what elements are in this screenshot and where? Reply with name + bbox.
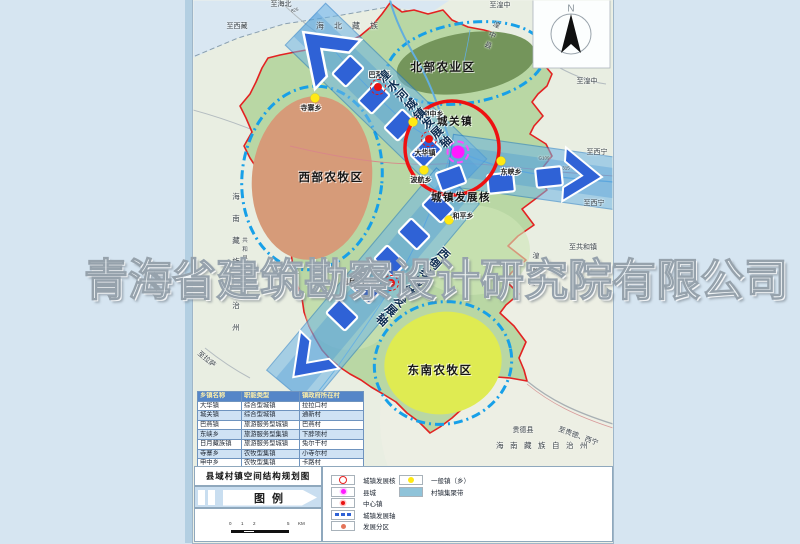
- label-zone-southeast: 东南农牧区: [408, 362, 473, 378]
- legend: 城镇发展核 县城 中心镇 城镇发展轴 发展分区 一般镇（乡）: [322, 466, 613, 542]
- cluster-belt-symbol: [399, 487, 423, 497]
- plan-title: 县域村镇空间结构规划图: [194, 466, 322, 486]
- col-town-name: 乡镇名称: [198, 392, 242, 402]
- legend-item-central-town: 中心镇: [331, 499, 396, 507]
- table-row: 东峡乡旅游服务型集镇下脖项村: [198, 430, 364, 440]
- table-row: 城关镇综合型城镇通新村: [198, 411, 364, 421]
- region-label-hainan-bottom: 海南藏族自治州: [496, 438, 596, 454]
- legend-item-general-town: 一般镇（乡）: [399, 476, 470, 484]
- legend-item-axis: 城镇发展轴: [331, 511, 396, 519]
- table-row: 日月藏族镇旅游服务型城镇兔尔干村: [198, 439, 364, 449]
- general-town-symbol: [399, 475, 423, 485]
- label-dongxia: 东峡乡: [501, 167, 522, 177]
- legend-left-column: 城镇发展核 县城 中心镇 城镇发展轴 发展分区: [331, 476, 396, 530]
- central-town-symbol: [331, 498, 355, 508]
- zone-dot-symbol: [331, 521, 355, 531]
- label-bohang: 波航乡: [411, 175, 432, 185]
- label-county-seat: 城关镇: [437, 114, 473, 129]
- label-dahua: 大华镇: [415, 148, 436, 158]
- label-heping: 和平乡: [453, 211, 474, 221]
- legend-pennant: 图例: [223, 490, 317, 506]
- scale-tick: 5: [287, 521, 290, 526]
- legend-title: 图例: [250, 490, 290, 506]
- marker-town-sizhai: [311, 94, 320, 103]
- scale-tick: 1: [241, 521, 244, 526]
- scale-tick: 0: [229, 521, 232, 526]
- col-function-type: 职能类型: [242, 392, 300, 402]
- region-label-haibei-zangzu: 海北藏族: [316, 23, 388, 32]
- table-row: 巴燕镇旅游服务型城镇巴燕村: [198, 420, 364, 430]
- scale-unit: KM: [298, 521, 305, 526]
- edge-label-huangzhong-top: 至湟中: [490, 2, 511, 10]
- planning-map-page: 巴燕镇 大华镇 日月藏族镇 寺寨乡 申中乡 波航乡 东峡乡 和平乡 城关镇 北部…: [0, 0, 800, 544]
- legend-item-cluster-belt: 村镇集聚带: [399, 488, 470, 496]
- road-label-g109: G109: [538, 157, 549, 162]
- label-zone-west: 西部农牧区: [299, 169, 364, 185]
- col-gov-village: 镇政府所在村: [300, 392, 364, 402]
- marker-town-bohang: [420, 166, 429, 175]
- core-ring-symbol: [331, 475, 355, 485]
- table-row: 寺寨乡农牧型集镇小寺尔村: [198, 449, 364, 459]
- compass-n-label: N: [567, 4, 574, 15]
- road-label-315: 315: [562, 167, 570, 172]
- label-development-core: 城镇发展核: [431, 190, 491, 205]
- scale-segment: [255, 530, 289, 533]
- banner-bar: [208, 490, 215, 505]
- edge-label-huangzhong-right: 至湟中: [577, 78, 598, 86]
- table-header-row: 乡镇名称 职能类型 镇政府所在村: [198, 392, 364, 402]
- legend-right-column: 一般镇（乡） 村镇集聚带: [399, 476, 470, 496]
- edge-label-haibei: 至海北: [271, 1, 292, 9]
- legend-item-core: 城镇发展核: [331, 476, 396, 484]
- region-label-guide-county: 贵德县: [513, 427, 534, 435]
- scale-bar: 0 1 2 5 KM: [194, 508, 322, 542]
- label-sizhai: 寺寨乡: [301, 103, 322, 113]
- table-row: 大华镇综合型城镇拉拉口村: [198, 401, 364, 411]
- scale-tick: 2: [253, 521, 256, 526]
- scale-segment: [231, 530, 243, 533]
- legend-item-county-seat: 县城: [331, 488, 396, 496]
- edge-label-xining-lower: 至西宁: [584, 200, 605, 208]
- label-zone-north: 北部农业区: [411, 59, 476, 75]
- marker-town-dongxia: [497, 157, 506, 166]
- county-seat-symbol: [331, 487, 355, 497]
- axis-dash-symbol: [331, 510, 355, 520]
- legend-banner: 图例: [194, 486, 322, 508]
- edge-label-xining-arrow: 至西宁: [587, 149, 608, 157]
- legend-item-zone: 发展分区: [331, 522, 396, 530]
- company-watermark: 青海省建筑勘察设计研究院有限公司: [84, 244, 788, 308]
- edge-label-xizang: 至西藏: [227, 23, 248, 31]
- scale-segment: [243, 530, 255, 533]
- banner-bar: [198, 490, 205, 505]
